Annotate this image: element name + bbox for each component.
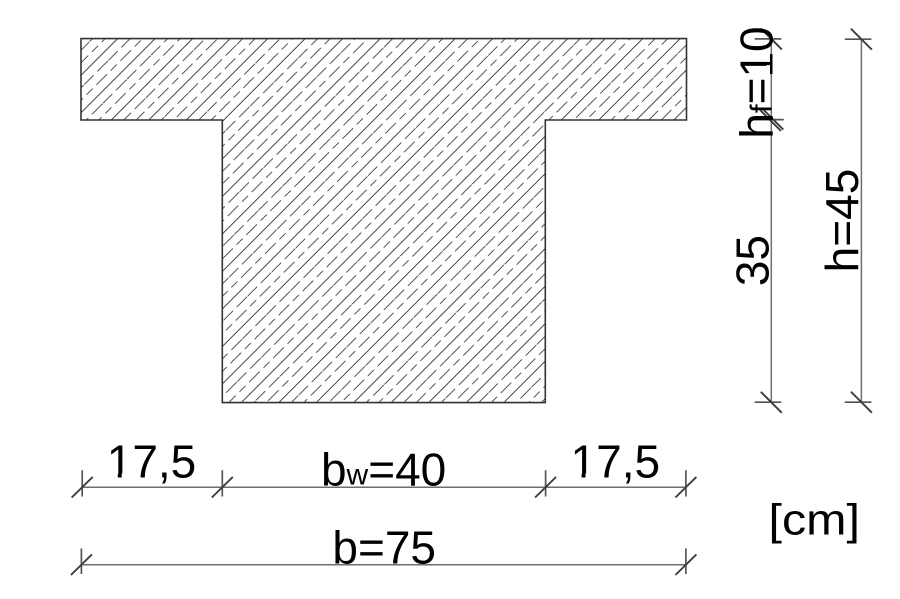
svg-text:hf=10: hf=10 bbox=[730, 26, 782, 138]
svg-text:[cm]: [cm] bbox=[768, 495, 859, 544]
svg-text:17,5: 17,5 bbox=[571, 436, 661, 488]
svg-text:bw=40: bw=40 bbox=[321, 444, 446, 496]
svg-text:35: 35 bbox=[726, 235, 778, 286]
svg-text:b=75: b=75 bbox=[332, 522, 436, 574]
svg-text:17,5: 17,5 bbox=[107, 436, 197, 488]
svg-text:h=45: h=45 bbox=[816, 169, 868, 273]
